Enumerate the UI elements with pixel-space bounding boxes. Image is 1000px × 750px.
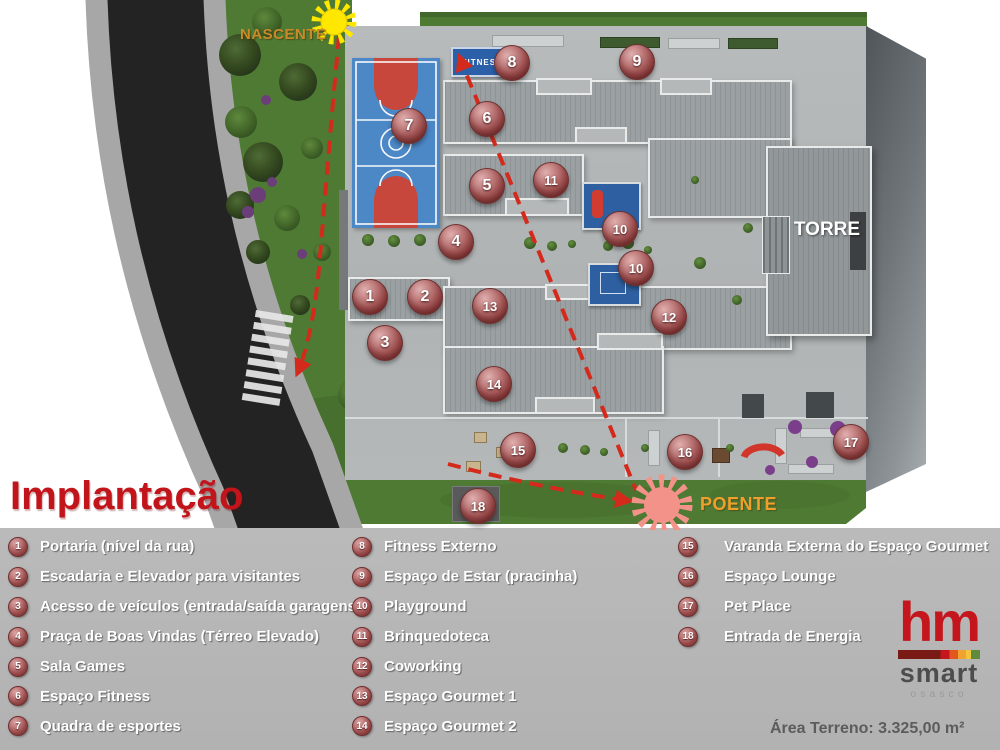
poente-label: POENTE (700, 494, 777, 515)
legend-item-label: Espaço de Estar (pracinha) (384, 568, 577, 585)
map-marker-number: 3 (381, 334, 390, 352)
legend-item-label: Acesso de veículos (entrada/saída garage… (40, 598, 361, 615)
terrace-bench (668, 38, 720, 49)
map-marker-number: 9 (633, 53, 642, 71)
legend-number-badge: 14 (352, 716, 372, 736)
legend-item-label: Quadra de esportes (40, 718, 181, 735)
logo-smart-text: smart (897, 660, 981, 687)
right-boundary-wall (866, 26, 926, 492)
legend-item-label: Espaço Fitness (40, 688, 150, 705)
legend-item-2: 2Escadaria e Elevador para visitantes (8, 562, 348, 592)
legend-number-badge: 13 (352, 686, 372, 706)
legend-item-11: 11Brinquedoteca (352, 622, 674, 652)
roof-notch (575, 127, 627, 144)
map-marker-number: 4 (452, 233, 461, 251)
legend-item-label: Escadaria e Elevador para visitantes (40, 568, 300, 585)
map-marker-number: 2 (421, 288, 430, 306)
legend-number-badge: 7 (8, 716, 28, 736)
map-marker-15: 15 (500, 432, 536, 468)
legend-item-label: Brinquedoteca (384, 628, 489, 645)
map-marker-10: 10 (602, 211, 638, 247)
map-marker-14: 14 (476, 366, 512, 402)
legend-item-label: Entrada de Energia (724, 628, 861, 645)
gourmet-table (474, 432, 487, 443)
nascente-label: NASCENTE (240, 26, 327, 43)
map-marker-number: 1 (366, 288, 375, 306)
map-marker-12: 12 (651, 299, 687, 335)
legend-number-badge: 17 (678, 597, 698, 617)
roof-notch (535, 397, 595, 414)
map-marker-3: 3 (367, 325, 403, 361)
map-marker-number: 17 (844, 435, 858, 450)
implantacao-page: FITNESS (0, 0, 1000, 750)
map-marker-number: 10 (629, 261, 643, 276)
map-marker-number: 8 (508, 54, 517, 72)
map-marker-number: 5 (483, 177, 492, 195)
legend-item-label: Espaço Lounge (724, 568, 836, 585)
map-marker-number: 16 (678, 445, 692, 460)
map-marker-17: 17 (833, 424, 869, 460)
legend-item-12: 12Coworking (352, 652, 674, 682)
legend-item-label: Espaço Gourmet 2 (384, 718, 517, 735)
terrain-area-label: Área Terreno: 3.325,00 m² (770, 720, 964, 738)
lounge-bench (648, 430, 660, 466)
legend-number-badge: 12 (352, 657, 372, 677)
legend-item-14: 14Espaço Gourmet 2 (352, 711, 674, 741)
map-marker-number: 11 (544, 173, 558, 188)
legend-item-6: 6Espaço Fitness (8, 681, 348, 711)
map-marker-8: 8 (494, 45, 530, 81)
legend-item-label: Fitness Externo (384, 538, 497, 555)
roof-notch (505, 198, 569, 216)
legend-item-15: 15Varanda Externa do Espaço Gourmet (678, 532, 996, 562)
legend-item-10: 10Playground (352, 592, 674, 622)
legend-item-8: 8Fitness Externo (352, 532, 674, 562)
map-marker-number: 18 (471, 499, 485, 514)
legend-item-7: 7Quadra de esportes (8, 711, 348, 741)
terrace-divider (625, 419, 627, 477)
legend-item-16: 16Espaço Lounge (678, 562, 996, 592)
legend-number-badge: 2 (8, 567, 28, 587)
legend-number-badge: 15 (678, 537, 698, 557)
legend-item-9: 9Espaço de Estar (pracinha) (352, 562, 674, 592)
roof-notch (597, 333, 663, 350)
map-marker-number: 6 (483, 110, 492, 128)
map-marker-9: 9 (619, 44, 655, 80)
legend-item-4: 4Praça de Boas Vindas (Térreo Elevado) (8, 622, 348, 652)
legend-item-label: Portaria (nível da rua) (40, 538, 194, 555)
map-marker-13: 13 (472, 288, 508, 324)
legend-number-badge: 9 (352, 567, 372, 587)
lounge-bench (775, 428, 787, 464)
logo-city-text: osasco (897, 687, 981, 702)
map-marker-5: 5 (469, 168, 505, 204)
map-marker-number: 10 (613, 222, 627, 237)
legend-item-label: Praça de Boas Vindas (Térreo Elevado) (40, 628, 319, 645)
legend-number-badge: 3 (8, 597, 28, 617)
hm-smart-logo: hm smart osasco (897, 596, 981, 701)
legend-number-badge: 5 (8, 657, 28, 677)
terrace-niche (742, 394, 764, 418)
lounge-table (712, 448, 730, 463)
legend-item-13: 13Espaço Gourmet 1 (352, 681, 674, 711)
map-marker-10: 10 (618, 250, 654, 286)
terrace-bench (492, 35, 564, 47)
court-side-wall (339, 190, 348, 310)
logo-hm-text: hm (897, 596, 981, 648)
map-marker-number: 7 (405, 117, 414, 135)
sports-court (352, 58, 440, 228)
terrace-planter (728, 38, 778, 49)
legend-item-label: Espaço Gourmet 1 (384, 688, 517, 705)
legend-number-badge: 1 (8, 537, 28, 557)
legend-number-badge: 16 (678, 567, 698, 587)
gourmet-table (466, 461, 481, 472)
map-marker-18: 18 (460, 488, 496, 524)
roof-notch (536, 78, 592, 95)
torre-label: TORRE (788, 219, 866, 241)
legend-item-1: 1Portaria (nível da rua) (8, 532, 348, 562)
legend-column-2: 8Fitness Externo9Espaço de Estar (pracin… (352, 532, 674, 741)
page-title: Implantação (10, 474, 243, 519)
legend-number-badge: 6 (8, 686, 28, 706)
map-marker-2: 2 (407, 279, 443, 315)
legend-item-label: Sala Games (40, 658, 125, 675)
legend-item-5: 5Sala Games (8, 652, 348, 682)
legend-number-badge: 4 (8, 627, 28, 647)
legend-column-1: 1Portaria (nível da rua)2Escadaria e Ele… (8, 532, 348, 741)
legend-number-badge: 18 (678, 627, 698, 647)
legend-item-label: Playground (384, 598, 467, 615)
map-marker-number: 13 (483, 299, 497, 314)
legend-item-label: Coworking (384, 658, 462, 675)
map-marker-6: 6 (469, 101, 505, 137)
map-marker-number: 12 (662, 310, 676, 325)
map-marker-number: 15 (511, 443, 525, 458)
playground-slide (592, 190, 603, 218)
terrace-edge (345, 417, 868, 419)
map-marker-4: 4 (438, 224, 474, 260)
map-marker-11: 11 (533, 162, 569, 198)
roof-notch (660, 78, 712, 95)
legend-item-label: Pet Place (724, 598, 791, 615)
legend-number-badge: 8 (352, 537, 372, 557)
legend-item-3: 3Acesso de veículos (entrada/saída garag… (8, 592, 348, 622)
map-marker-16: 16 (667, 434, 703, 470)
legend-number-badge: 11 (352, 627, 372, 647)
map-marker-1: 1 (352, 279, 388, 315)
tower-stairs (762, 216, 790, 274)
terrace-niche (806, 392, 834, 418)
map-marker-7: 7 (391, 108, 427, 144)
legend-number-badge: 10 (352, 597, 372, 617)
pet-bench (788, 464, 834, 474)
legend-item-label: Varanda Externa do Espaço Gourmet (724, 538, 988, 555)
map-marker-number: 14 (487, 377, 501, 392)
